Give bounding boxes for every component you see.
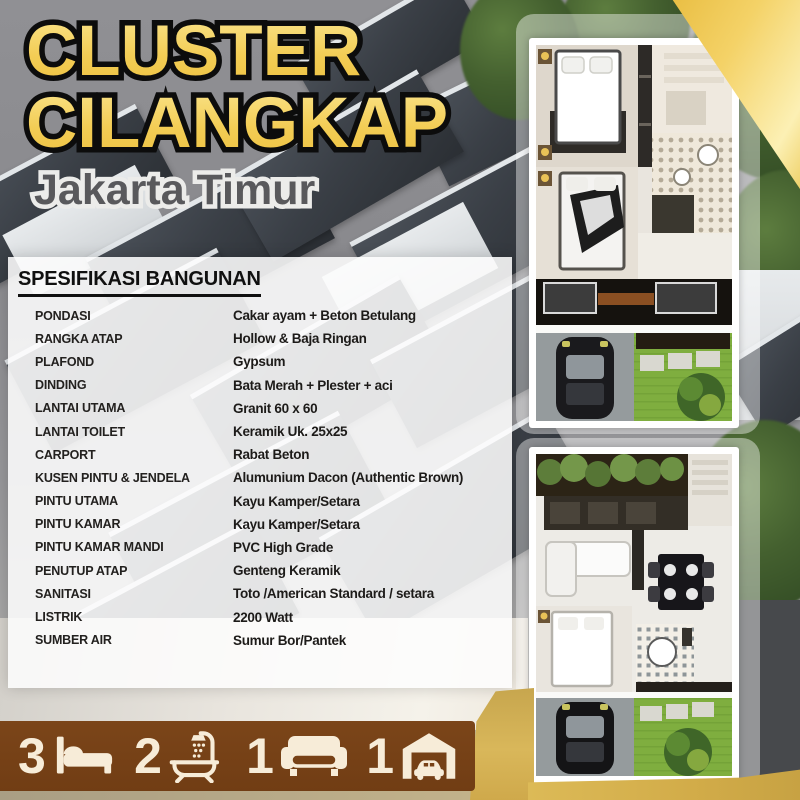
livingroom-count: 1 [246, 726, 274, 786]
spec-label: SUMBER AIR [8, 633, 233, 647]
poster-title-line1: CLUSTER CLUSTER [26, 16, 34, 88]
bottom-strip [0, 790, 475, 800]
spec-label: CARPORT [8, 448, 233, 462]
spec-value: Granit 60 x 60 [233, 401, 512, 416]
spec-value: Toto /American Standard / setara [233, 586, 512, 601]
spec-label: DINDING [8, 378, 233, 392]
feature-bar: 3 2 [0, 721, 475, 791]
spec-label: LANTAI TOILET [8, 425, 233, 439]
spec-row: PINTU KAMAR MANDIPVC High Grade [8, 536, 512, 559]
spec-row: LANTAI TOILETKeramik Uk. 25x25 [8, 420, 512, 443]
spec-value: Hollow & Baja Ringan [233, 331, 512, 346]
spec-value: Alumunium Dacon (Authentic Brown) [233, 470, 512, 485]
spec-row: PONDASICakar ayam + Beton Betulang [8, 304, 512, 327]
specification-panel: SPESIFIKASI BANGUNAN PONDASICakar ayam +… [8, 257, 512, 688]
subtitle-text: Jakarta Timur [34, 166, 315, 214]
spec-label: PINTU UTAMA [8, 494, 233, 508]
bedroom-count: 3 [18, 726, 46, 786]
spec-label: PLAFOND [8, 355, 233, 369]
spec-label: RANGKA ATAP [8, 332, 233, 346]
feature-livingrooms: 1 [246, 726, 347, 786]
spec-label: LANTAI UTAMA [8, 401, 233, 415]
garage-icon [401, 731, 457, 781]
garage-count: 1 [366, 726, 394, 786]
poster-title-line2: CILANGKAP CILANGKAP [26, 88, 34, 160]
spec-row: PINTU UTAMAKayu Kamper/Setara [8, 490, 512, 513]
feature-bathrooms: 2 [134, 726, 227, 786]
spec-value: Kayu Kamper/Setara [233, 517, 512, 532]
spec-label: PINTU KAMAR [8, 517, 233, 531]
spec-value: Gypsum [233, 354, 512, 369]
spec-value: Cakar ayam + Beton Betulang [233, 308, 512, 323]
spec-value: 2200 Watt [233, 610, 512, 625]
spec-label: PENUTUP ATAP [8, 564, 233, 578]
title-line2-text: CILANGKAP [26, 88, 448, 160]
spec-label: PINTU KAMAR MANDI [8, 540, 233, 554]
spec-table: PONDASICakar ayam + Beton Betulang RANGK… [8, 304, 512, 652]
title-line1-text: CLUSTER [26, 16, 361, 88]
floorplan-2-image [529, 447, 739, 783]
spec-value: PVC High Grade [233, 540, 512, 555]
spec-label: PONDASI [8, 309, 233, 323]
bathroom-count: 2 [134, 726, 162, 786]
spec-row: SANITASIToto /American Standard / setara [8, 582, 512, 605]
spec-row: LANTAI UTAMAGranit 60 x 60 [8, 397, 512, 420]
spec-row: RANGKA ATAPHollow & Baja Ringan [8, 327, 512, 350]
spec-value: Sumur Bor/Pantek [233, 633, 512, 648]
sofa-icon [281, 734, 347, 778]
bath-icon [169, 729, 227, 783]
spec-row: DINDINGBata Merah + Plester + aci [8, 374, 512, 397]
spec-row: PINTU KAMARKayu Kamper/Setara [8, 513, 512, 536]
spec-heading: SPESIFIKASI BANGUNAN [18, 268, 261, 297]
spec-value: Kayu Kamper/Setara [233, 494, 512, 509]
spec-label: SANITASI [8, 587, 233, 601]
title-block: CLUSTER CLUSTER CILANGKAP CILANGKAP Jaka… [26, 16, 34, 216]
spec-value: Rabat Beton [233, 447, 512, 462]
spec-value: Keramik Uk. 25x25 [233, 424, 512, 439]
spec-label: KUSEN PINTU & JENDELA [8, 471, 233, 485]
spec-row: SUMBER AIRSumur Bor/Pantek [8, 629, 512, 652]
spec-row: PLAFONDGypsum [8, 350, 512, 373]
floorplan-1-image [529, 38, 739, 428]
feature-bedrooms: 3 [18, 726, 115, 786]
spec-label: LISTRIK [8, 610, 233, 624]
bed-icon [53, 734, 115, 778]
spec-row: PENUTUP ATAPGenteng Keramik [8, 559, 512, 582]
spec-row: CARPORTRabat Beton [8, 443, 512, 466]
feature-garages: 1 [366, 726, 457, 786]
spec-value: Bata Merah + Plester + aci [233, 378, 512, 393]
spec-row: KUSEN PINTU & JENDELAAlumunium Dacon (Au… [8, 466, 512, 489]
spec-row: LISTRIK2200 Watt [8, 605, 512, 628]
property-poster: CLUSTER CLUSTER CILANGKAP CILANGKAP Jaka… [0, 0, 800, 800]
spec-value: Genteng Keramik [233, 563, 512, 578]
